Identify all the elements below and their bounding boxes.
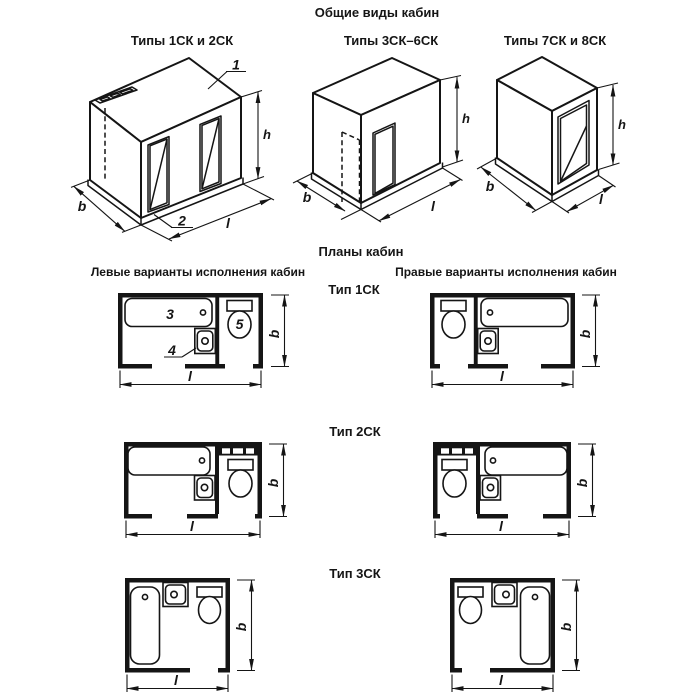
dimension-width: b (266, 295, 289, 367)
iso-view-types-3sk-6sk: h b l (285, 55, 475, 235)
callout-number-sink: 4 (167, 342, 176, 358)
bathtub: 3 (125, 299, 212, 327)
dimension-width: b (574, 444, 596, 517)
mirrored-layout (450, 578, 555, 673)
dim-label-h: h (618, 117, 626, 132)
toilet: 5 (227, 301, 252, 339)
left-column-header: Левые варианты исполнения кабин (91, 265, 305, 279)
dim-label-b: b (78, 198, 87, 214)
sink (195, 329, 216, 354)
dimension-width: b (233, 580, 255, 671)
plan-type-3sk-left: b l (100, 545, 280, 700)
dim-label-l: l (599, 191, 604, 207)
toilet (441, 301, 466, 339)
dimension-length: l (452, 672, 553, 692)
dim-label-b: b (266, 329, 282, 338)
dimension-width: b (558, 580, 580, 671)
sink (492, 583, 517, 607)
plan-type-3sk-right: b l (420, 545, 600, 700)
dim-label-l: l (190, 518, 195, 534)
dim-label-l: l (499, 672, 504, 688)
sink (478, 329, 499, 354)
callout-roof-panel: 1 (208, 57, 246, 90)
dim-label-b: b (303, 189, 312, 205)
mirrored-layout (430, 293, 575, 369)
drawing-sheet: Общие виды кабин Типы 1СК и 2СК Типы 3СК… (0, 0, 700, 700)
plan-type-2sk-right: b l (405, 435, 610, 545)
page-title: Общие виды кабин (315, 5, 440, 20)
dimension-length: l (435, 518, 569, 538)
dimension-length: l (432, 368, 573, 388)
callout-number-toilet: 5 (236, 316, 244, 332)
row-label-type-2sk: Тип 2СК (329, 424, 380, 439)
toilet (197, 587, 222, 624)
toilet (458, 587, 483, 624)
dim-label-l: l (500, 368, 505, 384)
vent-block (438, 447, 477, 456)
dim-label-b: b (558, 622, 574, 631)
bathtub (521, 587, 550, 664)
sink (163, 583, 188, 607)
toilet (228, 460, 253, 498)
callout-sink: 4 (164, 342, 196, 358)
right-column-header: Правые варианты исполнения кабин (395, 265, 617, 279)
plan-type-1sk-left: 3 5 4 b l (100, 285, 300, 395)
iso-view-types-7sk-8sk: h b l (470, 55, 650, 225)
toilet (442, 460, 467, 498)
dim-label-b: b (486, 178, 495, 194)
dimension-height: h (440, 76, 470, 168)
dim-label-l: l (431, 198, 436, 214)
vent-block (219, 447, 258, 456)
dim-label-h: h (462, 111, 470, 126)
dim-label-l: l (226, 215, 231, 231)
bathtub (131, 587, 160, 664)
bathtub (485, 447, 567, 475)
callout-number-floor: 2 (177, 213, 186, 229)
caption-types-3sk-6sk: Типы 3СК–6СК (344, 33, 438, 48)
dim-label-b: b (265, 478, 281, 487)
dim-label-b: b (574, 478, 590, 487)
sink (480, 476, 501, 501)
dimension-width: b (265, 444, 287, 517)
iso-view-types-1sk-2sk: 1 2 h b l (50, 55, 280, 250)
callout-floor-panel: 2 (154, 213, 193, 229)
dimension-length: l (127, 672, 228, 692)
plans-title: Планы кабин (318, 244, 403, 259)
caption-types-7sk-8sk: Типы 7СК и 8СК (504, 33, 606, 48)
dimension-length: l (120, 368, 261, 388)
bathtub (128, 447, 210, 475)
dimension-width: b (577, 295, 600, 367)
plan-type-1sk-right: b l (400, 285, 605, 395)
caption-types-1sk-2sk: Типы 1СК и 2СК (131, 33, 233, 48)
row-label-type-1sk: Тип 1СК (328, 282, 379, 297)
dimension-height: h (597, 83, 626, 170)
dimension-length: l (126, 518, 260, 538)
callout-number-bath: 3 (166, 306, 174, 322)
plan-type-2sk-left: b l (115, 435, 315, 545)
row-label-type-3sk: Тип 3СК (329, 566, 380, 581)
callout-number-roof: 1 (232, 57, 240, 73)
dim-label-l: l (188, 368, 193, 384)
cabin-box (496, 57, 599, 202)
dim-label-h: h (263, 127, 271, 142)
dim-label-l: l (499, 518, 504, 534)
sink (195, 476, 216, 501)
mirrored-layout (433, 442, 571, 519)
dim-label-b: b (577, 329, 593, 338)
dimension-height: h (241, 91, 271, 185)
bathtub (481, 299, 568, 327)
dim-label-l: l (174, 672, 179, 688)
dim-label-b: b (233, 622, 249, 631)
